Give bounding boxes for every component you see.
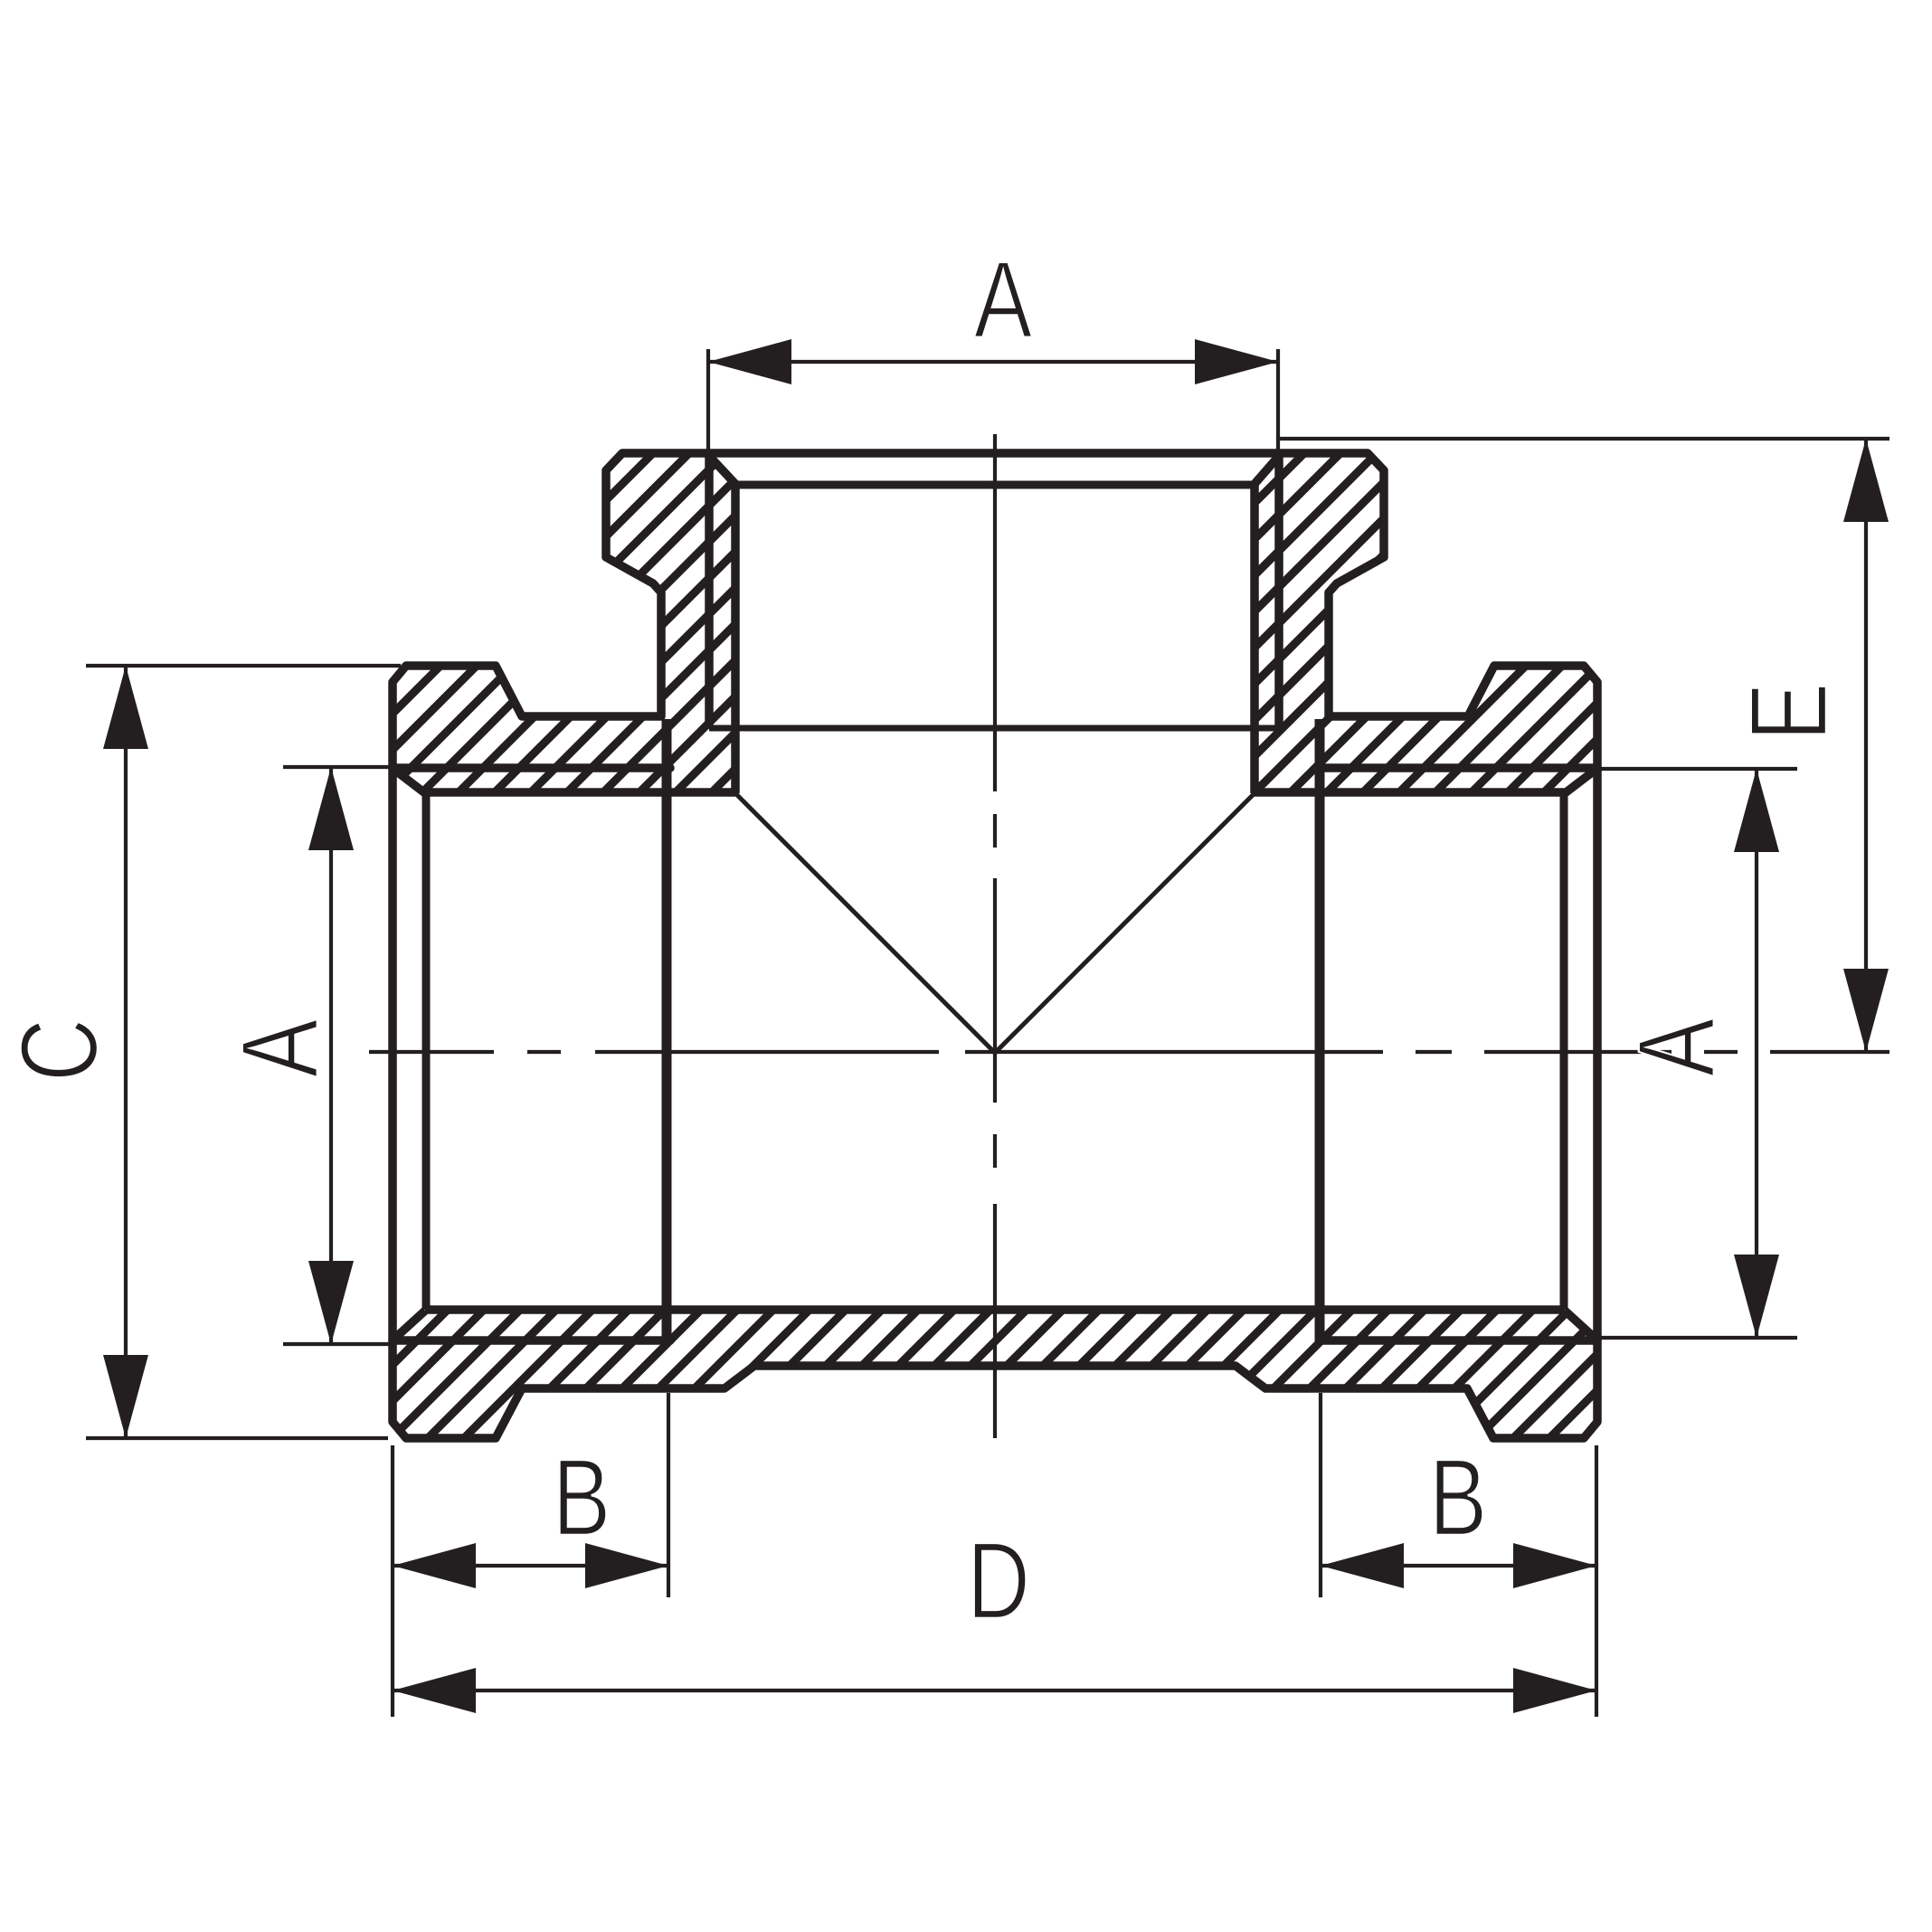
svg-text:A: A [974,240,1033,362]
svg-text:D: D [967,1520,1030,1643]
svg-text:E: E [1728,683,1851,742]
svg-text:B: B [553,1437,611,1559]
svg-text:A: A [220,1019,342,1078]
svg-text:C: C [0,1018,121,1082]
svg-text:B: B [1429,1437,1488,1559]
svg-text:A: A [1616,1018,1738,1077]
